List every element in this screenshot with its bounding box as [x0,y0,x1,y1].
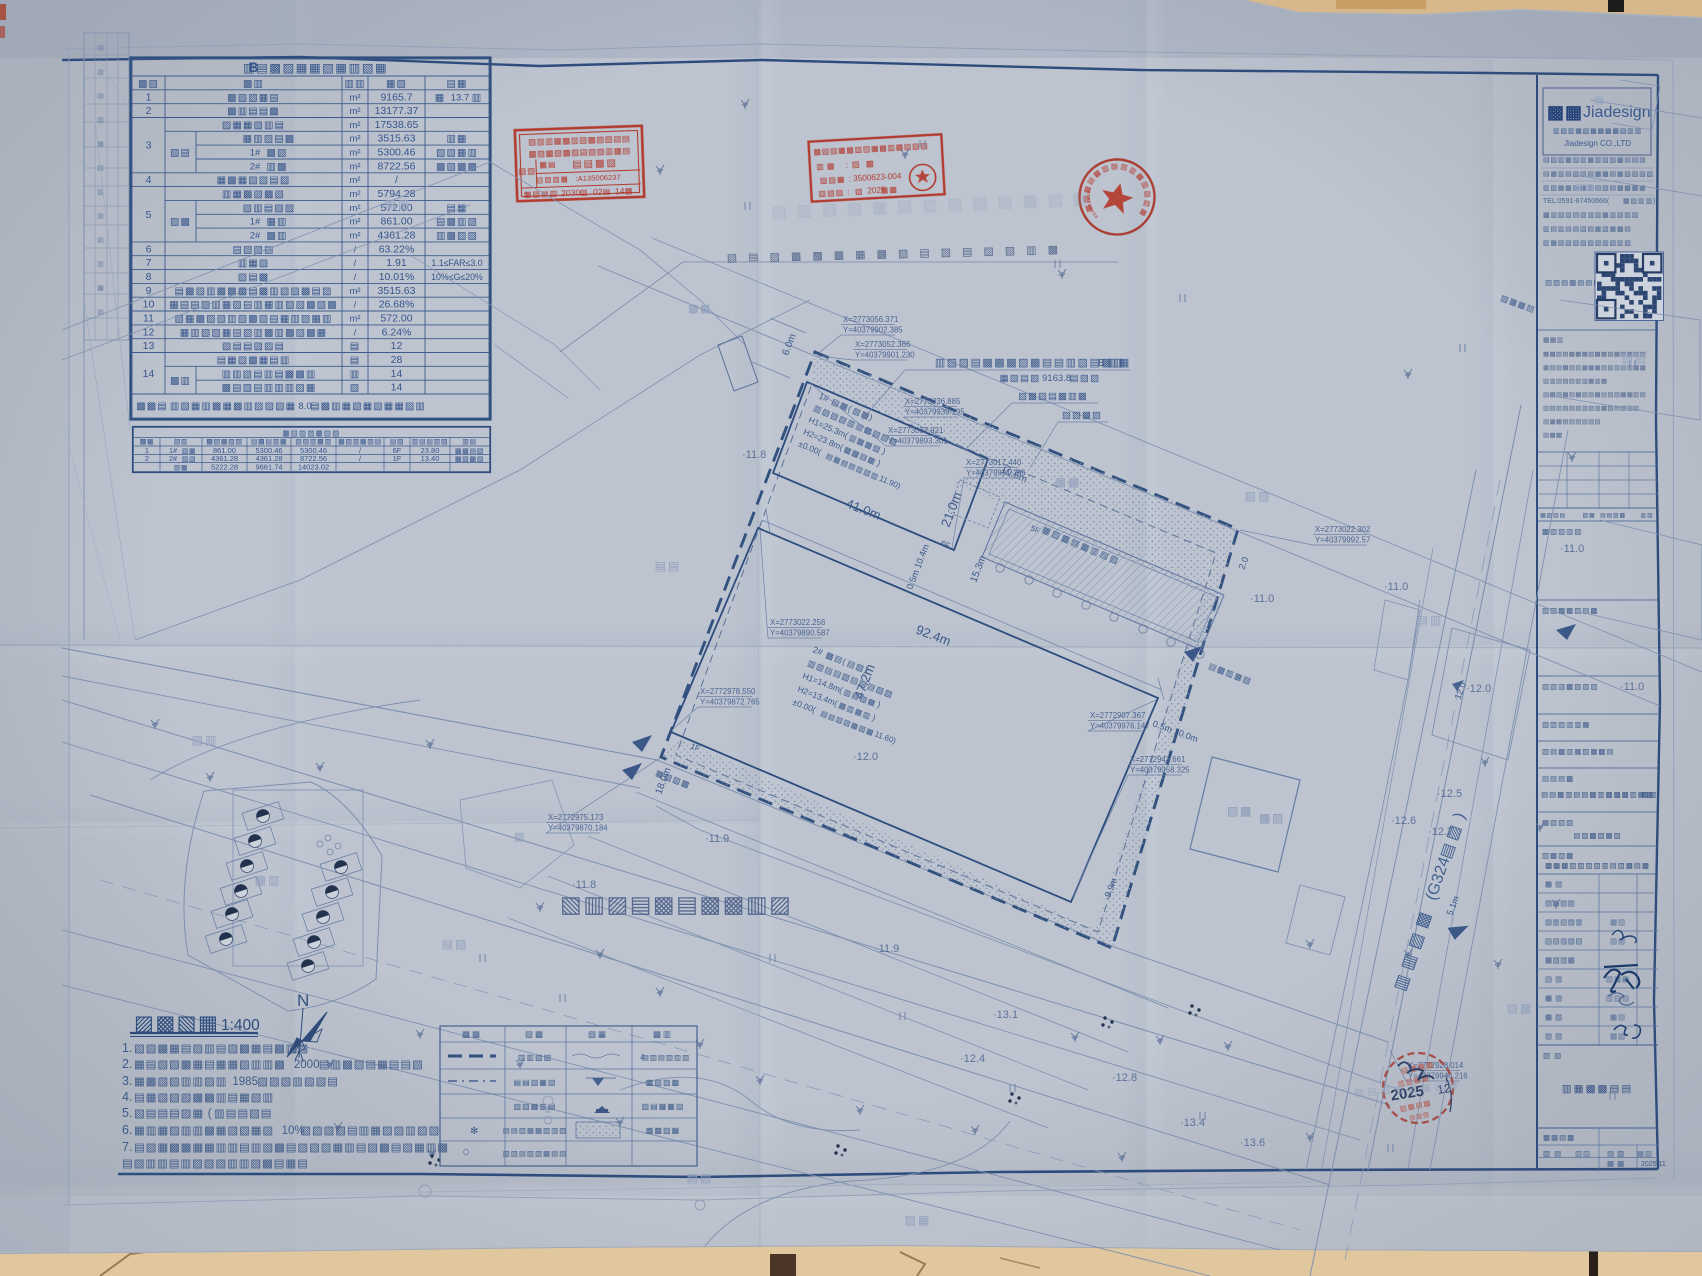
svg-text:▩▩▩▧▨▧▧▥▤▧▩▤▩: ▩▩▩▧▨▧▧▥▤▧▩▤▩ [1545,861,1650,870]
svg-text:▩▩▨▦: ▩▩▨▦ [646,1126,680,1135]
svg-text:/: / [354,272,357,283]
svg-text:2000: 2000 [294,1059,320,1071]
svg-text:m²: m² [349,134,360,145]
svg-text:6: 6 [146,243,152,255]
svg-text:▦▤▤▨▥▦▨▤▥▦▥▨▨▩▧▩: ▦▤▤▨▥▦▨▤▥▦▥▨▨▩▧▩ [169,300,338,311]
svg-text:▥▥: ▥▥ [1641,513,1654,519]
svg-text:▥▩: ▥▩ [816,161,838,171]
svg-text:·12.8: ·12.8 [1112,1072,1137,1084]
svg-text:▧▩: ▧▩ [525,1029,545,1039]
svg-text:8: 8 [146,271,152,283]
svg-text:1F: 1F [393,454,402,463]
svg-text:▧: ▧ [855,187,864,196]
svg-text:▤: ▤ [97,45,105,52]
svg-text:·12.0: ·12.0 [1466,683,1491,695]
svg-text:▩▥▤▤▩: ▩▥▤▤▩ [227,106,280,117]
svg-text:11: 11 [143,312,154,324]
svg-text:▦▥: ▦▥ [266,217,287,228]
svg-text:▧▥: ▧▥ [174,439,189,446]
svg-text:▧: ▧ [1143,190,1153,199]
svg-text:▤▥▤▨▨▧: ▤▥▤▨▨▧ [642,1053,690,1062]
svg-text:▩▥: ▩▥ [266,231,287,242]
svg-text:▤▨: ▤▨ [442,937,469,951]
svg-text:m²: m² [349,148,360,159]
svg-text:▦▥: ▦▥ [1637,1149,1653,1158]
svg-text:13: 13 [143,340,155,352]
svg-text:·13.6: ·13.6 [1240,1137,1265,1149]
svg-text:13.7: 13.7 [451,92,470,103]
svg-text:/: / [395,174,398,186]
svg-text:▤▦: ▤▦ [446,78,467,89]
svg-text:▦▩▧▨▥▥▨▥: ▦▩▧▨▥▥▨▥ [134,1076,227,1088]
svg-text:▧▤▨: ▧▤▨ [818,188,844,198]
svg-text:▤▧▦▩▩▦▦▥▥▤▥▧▩▤▨▧▨▦▥▤▨▩▤▧▦▥▩: ▤▧▦▩▩▦▦▥▥▤▥▧▩▤▨▧▨▦▥▤▨▩▤▧▦▥▩ [134,1142,449,1154]
svg-text:▩▧▧▦▤: ▩▧▧▦▤ [227,92,280,103]
svg-text:1985: 1985 [232,1076,258,1088]
svg-text:▧▥▤▨▥: ▧▥▤▨▥ [1545,918,1583,927]
svg-text:▧▧: ▧▧ [518,166,536,177]
svg-text:▩▥: ▩▥ [653,1029,673,1039]
svg-text:m²: m² [349,217,360,228]
svg-text:9163.8: 9163.8 [1042,373,1071,384]
svg-text:▧▤▤▨▨▤: ▧▤▤▨▨▤ [222,341,285,352]
svg-text:10%≤G≤20%: 10%≤G≤20% [431,272,483,282]
svg-text:▨▥: ▨▥ [192,733,219,747]
svg-text:▩▦: ▩▦ [140,439,155,446]
svg-text:▧: ▧ [97,69,105,76]
svg-text:▨▦: ▨▦ [905,1213,932,1227]
svg-text:▥▥▨▧: ▥▥▨▧ [518,1053,552,1062]
svg-text:5: 5 [146,209,152,221]
svg-text:▧: ▧ [350,383,361,394]
svg-text:▧▥: ▧▥ [1641,790,1657,799]
svg-text:▤: ▤ [1595,95,1606,106]
svg-text:4: 4 [146,174,152,186]
svg-text:▧▥▨▤▩▤▩▩▥▨: ▧▥▨▤▩▤▩▩▥▨ [560,891,792,917]
svg-text:2.: 2. [122,1057,132,1071]
svg-text:▩▧: ▩▧ [1545,880,1565,889]
svg-text:/: / [354,327,357,338]
svg-text:▤▦▧▨▧▩▩▥▤▦▧▥: ▤▦▧▨▧▩▩▥▤▦▧▥ [134,1092,274,1104]
svg-text:·11.0: ·11.0 [1250,593,1274,605]
svg-text:1#: 1# [250,217,261,228]
svg-text:m²: m² [349,120,360,131]
svg-text:m²: m² [349,161,360,172]
svg-text:▤▤▧▦▧: ▤▤▧▦▧ [514,1078,557,1087]
svg-text:▦▥▧▧▦▤▧▥▩▥▩▨▩▦: ▦▥▧▧▦▤▧▥▩▥▩▨▩▦ [180,327,327,338]
svg-text:▥▩▧▨: ▥▩▧▨ [436,231,478,242]
svg-text:▩▥: ▩▥ [170,376,191,387]
svg-text:▤: ▤ [350,341,361,352]
svg-text:▦▨▥▦▥▤: ▦▨▥▦▥▤ [338,439,382,446]
svg-text:Jiadesign: Jiadesign [1583,104,1651,121]
svg-text:▤▧: ▤▧ [1575,182,1594,192]
svg-text:▦▦: ▦▦ [1607,1159,1627,1168]
svg-text:·12.7: ·12.7 [1428,826,1453,838]
svg-text:5300.46: 5300.46 [378,147,416,159]
svg-text:▦▩: ▦▩ [1055,475,1082,489]
svg-text:·13.1: ·13.1 [993,1009,1018,1021]
svg-text:63.22%: 63.22% [379,243,415,255]
svg-text:12: 12 [391,340,403,352]
svg-text:X=2773036.885: X=2773036.885 [905,397,961,406]
svg-text:▧▤▦▦▨: ▧▤▦▦▨ [642,1102,685,1111]
svg-text:✻: ✻ [470,1126,478,1137]
svg-text:▩▧: ▩▧ [266,148,287,159]
svg-text:▨▥: ▨▥ [1575,1149,1591,1158]
svg-text:▨▧▩▦▤▨▥▤▨▩▦▤▩▥▧: ▨▧▩▦▤▨▥▤▨▩▦▤▩▥▧ [134,1043,309,1055]
svg-text:(: ( [208,1108,212,1120]
svg-text:3515.63: 3515.63 [378,285,416,297]
svg-text:▨▧▩▨: ▨▧▩▨ [1062,410,1102,421]
svg-text:▦▨▥▤: ▦▨▥▤ [1540,513,1566,519]
svg-text:2#: 2# [169,454,177,463]
svg-text:X=2773022.256: X=2773022.256 [770,618,825,627]
svg-text:/: / [354,244,357,255]
svg-text:▤▤▩▧: ▤▤▩▧ [572,158,618,171]
svg-text:m²: m² [349,175,360,186]
svg-text:▩▥: ▩▥ [1610,1013,1626,1022]
svg-text:14023.02: 14023.02 [298,462,329,471]
svg-text:12: 12 [143,326,155,338]
svg-text:▦▦▥: ▦▦▥ [1543,337,1563,344]
svg-text:▤▨: ▤▨ [390,439,405,446]
svg-text:10.01%: 10.01% [379,271,415,283]
svg-text:▨▨▧▥▧▧▤: ▨▨▧▥▧▧▤ [257,1076,339,1088]
svg-text:1:400: 1:400 [221,1017,260,1034]
svg-text:▦▤: ▦▤ [1610,918,1626,927]
svg-text:▨▩▧▦: ▨▩▧▦ [134,1012,219,1035]
svg-text:▧▨▨▨▤▥▦▨▨▥▨▧: ▧▨▨▨▤▥▦▨▨▥▨▧ [300,1125,440,1137]
svg-text:▦▧▤▩▨▥▦▦▦▨▥▥▤▥▩▦: ▦▧▤▩▨▥▦▦▦▨▥▥▤▥▩▦ [1543,365,1646,372]
svg-text:▧▤▤▤▨▦: ▧▤▤▤▨▦ [134,1108,204,1120]
svg-text:▥▥: ▥▥ [344,78,365,89]
svg-text:1.91: 1.91 [386,257,407,269]
svg-text:▧▧▥▩▨▧▧: ▧▧▥▩▨▧▧ [1542,682,1598,691]
svg-text:▧▩: ▧▩ [1507,1001,1534,1015]
svg-text:N: N [297,991,309,1010]
svg-text:▧▦▩▨▧▥▧▩▨▤▦▥▧▦▥: ▧▦▩▨▧▥▧▩▨▤▦▥▧▦▥ [175,313,333,324]
svg-text:4.: 4. [122,1090,132,1104]
svg-text:14: 14 [143,368,155,380]
svg-text:▧▨: ▧▨ [1545,1032,1565,1041]
svg-text:▥▦: ▥▦ [1107,357,1131,369]
svg-text:▦▤▧▧▩▦▤▦▦▧▥▥▩: ▦▤▧▧▩▦▤▦▦▧▥▥▩ [134,1059,286,1071]
svg-text:▨▦▦▨▥▤: ▨▦▦▨▥▤ [222,120,285,131]
svg-text:·11.9: ·11.9 [705,833,729,845]
svg-text:▩: ▩ [97,285,105,292]
svg-text:Y=40379958.325: Y=40379958.325 [1130,766,1190,775]
svg-text:▦▩▦▧▧▤▨: ▦▩▦▧▧▤▨ [217,175,291,186]
svg-text:▦▤: ▦▤ [539,160,557,170]
svg-text:4361.28: 4361.28 [378,230,416,242]
svg-text:·12.6: ·12.6 [1391,815,1416,827]
svg-text:9165.7: 9165.7 [380,91,412,103]
svg-text:·12.5: ·12.5 [1437,788,1462,800]
svg-text:/: / [354,258,357,269]
svg-text:▥▥▧▤▥▤▩▩▥: ▥▥▧▤▥▤▩▩▥ [222,369,317,380]
svg-text:▩▧▦▨▧: ▩▧▦▨▧ [206,439,243,446]
svg-text:▩▧: ▩▧ [138,78,159,89]
svg-text:·11.0: ·11.0 [1384,581,1408,593]
svg-text:1: 1 [146,91,152,103]
svg-text:▦▤▨▨▦▤▧: ▦▤▨▨▦▤▧ [282,429,340,438]
svg-text:X=2773017.440: X=2773017.440 [966,458,1022,467]
svg-text:▩▧▤▥: ▩▧▤▥ [524,189,559,199]
svg-text:m²: m² [349,92,360,103]
svg-text:▧▤▩▥▦▨▦▩▤: ▧▤▩▥▦▨▦▩▤ [1542,747,1615,756]
svg-text:Y=40379939.195: Y=40379939.195 [905,408,965,417]
svg-text:▨▥▨▥: ▨▥▨▥ [1545,899,1575,908]
svg-text:▤▧▧: ▤▧▧ [1070,373,1101,384]
svg-text:▧▥: ▧▥ [1622,351,1649,365]
svg-text:▧▦: ▧▦ [182,448,197,455]
svg-text:▤▧▩▧▦▨: ▤▧▩▧▦▨ [1573,831,1621,840]
svg-text:2#: 2# [250,161,261,172]
svg-text:▨▩: ▨▩ [170,217,191,228]
svg-text:▥: ▥ [97,261,105,268]
svg-text:▤▧▧▤: ▤▧▧▤ [232,244,274,255]
svg-text:B: B [1098,358,1105,369]
svg-text:▨▦: ▨▦ [1583,513,1596,519]
svg-text:▥▦: ▥▦ [446,134,467,145]
svg-text:▧▧▦▥▤: ▧▧▦▥▤ [514,1102,557,1111]
svg-text:▤: ▤ [97,237,105,244]
svg-text:▤▥: ▤▥ [1545,975,1565,984]
svg-text:10: 10 [143,299,155,311]
svg-text:▤▤: ▤▤ [655,559,682,573]
svg-text:X=2772978.550: X=2772978.550 [700,687,756,696]
svg-text:▤: ▤ [603,187,612,196]
svg-text:Y=40379893.301: Y=40379893.301 [888,437,948,446]
svg-text:▥: ▥ [350,369,361,380]
svg-text:▤▦: ▤▦ [446,203,467,214]
svg-text:▤: ▤ [97,213,105,220]
svg-text:▦: ▦ [625,186,634,195]
svg-text:▧▧: ▧▧ [1543,1051,1565,1060]
svg-text:·13.4: ·13.4 [1180,1117,1205,1129]
svg-text:▥▨▨▤▩▩▩▨▩▤▤▥▧▤▩▥: ▥▨▨▤▩▩▩▨▩▤▤▥▧▤▩▥ [935,357,1125,369]
svg-text:Y=40379992.57: Y=40379992.57 [1315,536,1370,545]
svg-text:▧: ▧ [1111,161,1120,171]
svg-text:▥▥▨▨▨▥▥▦▥▦: ▥▥▨▨▨▥▥▦▥▦ [1543,378,1607,385]
svg-text:▩▩: ▩▩ [462,1029,482,1039]
svg-text:▨▧: ▨▧ [182,456,197,463]
svg-text:▨▩▩: ▨▩▩ [1543,432,1562,439]
svg-text:▩▧▥▦: ▩▧▥▦ [1545,956,1575,965]
svg-text:▤: ▤ [97,93,105,100]
svg-text:▨▤: ▨▤ [1543,1149,1565,1158]
svg-text:▥: ▥ [472,92,483,103]
svg-text:▥▦: ▥▦ [174,464,189,471]
svg-text:▤▤▩▥▤▤▩▥▩▩▩▥▦▩: ▤▤▩▥▤▤▩▥▩▩▩▥▦▩ [1541,790,1654,799]
svg-text:▥▤▤▥▨: ▥▤▤▥▨ [412,439,449,446]
svg-text:·11.0: ·11.0 [1620,681,1644,693]
svg-text:▩▥: ▩▥ [243,78,264,89]
svg-text:m²: m² [349,231,360,242]
svg-text:·11.0: ·11.0 [1560,543,1584,555]
svg-text:▦▧: ▦▧ [386,78,407,89]
svg-text:▧▤▩: ▧▤▩ [238,272,270,283]
svg-text:8722.56: 8722.56 [378,160,416,172]
svg-text:▥▦▩▧▩▧: ▥▦▩▧▩▧ [222,189,285,200]
svg-text:▩▩▤▧: ▩▩▤▧ [455,448,484,455]
svg-text:6.24%: 6.24% [382,326,412,338]
svg-text:·11.9: ·11.9 [875,943,899,955]
svg-text:m²: m² [349,106,360,117]
svg-text:▧▧▦▥: ▧▧▦▥ [436,148,478,159]
svg-text:▩▦: ▩▦ [1547,102,1583,122]
svg-text:▦: ▦ [435,92,446,103]
svg-text:1.: 1. [122,1041,132,1055]
svg-text:TEL:0591-87450666(: TEL:0591-87450666( [1543,198,1610,205]
svg-text:1.1≤FAR≤3.0: 1.1≤FAR≤3.0 [431,258,482,268]
svg-text:2025.11: 2025.11 [1641,1161,1666,1168]
svg-text:2: 2 [145,454,149,463]
svg-text:6.: 6. [122,1123,132,1137]
svg-text:X=2773056.371: X=2773056.371 [843,315,898,324]
svg-text:▤▥: ▤▥ [385,197,412,211]
svg-text:m²: m² [349,286,360,297]
svg-text:▩▦▤▩: ▩▦▤▩ [1543,1133,1575,1142]
svg-text:Y=40379870.184: Y=40379870.184 [548,824,608,833]
svg-text:9661.74: 9661.74 [255,462,282,471]
svg-text:2030: 2030 [561,188,581,199]
svg-text:Y=40379901.230: Y=40379901.230 [855,351,915,360]
svg-text:▥▦▨: ▥▦▨ [238,258,270,269]
svg-text:▤: ▤ [350,355,361,366]
svg-text:02: 02 [593,187,603,197]
svg-text:▤▩▥▦▧▦▧▦▦▨▥: ▤▩▥▦▧▦▧▦▦▨▥ [310,401,426,412]
svg-text:▦▧▤▨: ▦▧▤▨ [1000,373,1041,384]
svg-text:▤▨: ▤▨ [687,1171,714,1185]
svg-text:572.00: 572.00 [380,312,412,324]
svg-text:▤▧▥▥▤▥▨▧▧▥▥▨▩▤▦▤: ▤▧▥▥▤▥▨▧▧▥▥▨▩▤▦▤ [122,1158,309,1170]
svg-text:14: 14 [391,368,403,380]
svg-text:17538.65: 17538.65 [375,119,419,131]
svg-text:▦▧▨▨: ▦▧▨▨ [1542,818,1574,827]
svg-text:861.00: 861.00 [380,216,412,228]
svg-text:m²: m² [349,203,360,214]
svg-text:▨▩▧▤▩▥▩: ▨▩▧▤▩▥▩ [1018,391,1088,402]
svg-text:·12.0: ·12.0 [853,751,878,763]
svg-text:▦▨▥▥: ▦▨▥▥ [1623,198,1653,205]
svg-text:▧▤: ▧▤ [170,148,191,159]
svg-text:▧▨▥▩▥: ▧▨▥▩▥ [295,439,332,446]
svg-text:3: 3 [146,140,152,152]
svg-text:▨▨: ▨▨ [1245,489,1272,503]
svg-text:·12.4: ·12.4 [960,1053,985,1065]
svg-text:Y=40379890.587: Y=40379890.587 [770,629,830,638]
svg-text:▤▨▥▦▨▥▦▥▨▨▩▤▤▤: ▤▨▥▦▨▥▦▥▨▨▩▤▤▤ [1543,155,1646,164]
svg-text:▤▦▨▩▦▤▥: ▤▦▨▩▦▤▥ [217,355,291,366]
svg-text:▥▤▤▧▤: ▥▤▤▧▤ [214,1108,272,1120]
svg-text::A135006237: :A135006237 [575,173,620,184]
svg-text:▩▨▩▨: ▩▨▩▨ [455,456,484,463]
svg-text:m²: m² [349,313,360,324]
svg-text:14: 14 [391,382,403,394]
svg-text:▤▥▩▨▤▦▤▤▧: ▤▥▩▨▤▦▤▤▧ [319,1059,424,1071]
svg-text:▨▩: ▨▩ [851,158,880,170]
svg-text:1#: 1# [250,148,261,159]
svg-text:▩▧: ▩▧ [1545,1013,1565,1022]
svg-text:▦▥▦▧▥▥▩▦▧▧▦▨: ▦▥▦▧▥▥▩▦▧▧▦▨ [134,1125,274,1137]
svg-text:▩▩▤: ▩▩▤ [136,401,168,412]
svg-text:▥▤▥▤▤▧▤▦▧▦▩▤: ▥▤▥▤▤▧▤▦▧▦▩▤ [1543,224,1632,233]
svg-text:▨: ▨ [580,188,589,197]
svg-text:5222.28: 5222.28 [211,462,238,471]
svg-text:▨▨▩▩▨▤▩: ▨▨▩▩▨▤▩ [1542,606,1598,615]
svg-text:m²: m² [349,189,360,200]
svg-text:▩▨▨▩: ▩▨▨▩ [646,1078,680,1087]
svg-text:▩▧▩▩: ▩▧▩▩ [436,161,478,172]
svg-text:2: 2 [146,105,152,117]
svg-text:▦▩: ▦▩ [880,185,898,195]
svg-text:Y=40379902.385: Y=40379902.385 [843,326,903,335]
svg-text:·11.8: ·11.8 [742,449,766,461]
svg-text:26.68%: 26.68% [379,299,415,311]
svg-text:▩▤▧▤▥▥▥▨▦: ▩▤▧▤▥▥▥▨▦ [222,383,317,394]
svg-text:▤▦▥▤▧▤▤▩▩▤▦▨▨▧▧: ▤▦▥▤▧▤▤▩▩▤▦▨▨▧▧ [1543,169,1654,178]
svg-text:▧▩: ▧▩ [1227,804,1253,818]
svg-text:▨▨▦: ▨▨▦ [820,175,846,185]
svg-text:▥▦▧▧▧▨▨▧▥▧▥▨: ▥▦▧▧▧▨▨▧▥▧▥▨ [1543,238,1632,247]
svg-text:Y=40379931.266: Y=40379931.266 [966,469,1026,478]
svg-text:X=2773032.921: X=2773032.921 [888,426,943,435]
svg-text:Jiadesign CO.,LTD: Jiadesign CO.,LTD [1564,139,1631,148]
svg-text:▥▧▦▥▩▦▩▥▨▨▧▦: ▥▧▦▥▩▦▩▥▨▨▧▦ [170,401,296,412]
svg-text:▧▥▤▧▨: ▧▥▤▧▨ [243,203,296,214]
svg-text:X=2773052.366: X=2773052.366 [855,340,910,349]
svg-text:3.: 3. [122,1074,132,1088]
svg-text:▦▥: ▦▥ [255,873,282,887]
svg-text:/: / [354,300,357,311]
svg-text:X=2772975.173: X=2772975.173 [548,813,603,822]
svg-text:5.: 5. [122,1106,132,1120]
svg-text:▤▥: ▤▥ [1417,613,1444,627]
svg-text:▥▦▩▩▤▤: ▥▦▩▩▤▤ [1562,1083,1634,1095]
svg-text:7: 7 [146,257,152,269]
svg-text:▤▤▥▨▤: ▤▤▥▨▤ [1545,937,1583,946]
svg-text:28: 28 [391,354,403,366]
svg-text:▥▤: ▥▤ [462,439,477,446]
svg-text:▩▥: ▩▥ [1545,994,1565,1003]
svg-text:▧▦: ▧▦ [588,1029,608,1039]
svg-text:▥▩: ▥▩ [266,161,287,172]
svg-text:▤▨: ▤▨ [1607,1149,1627,1158]
svg-text:X=2773022.302: X=2773022.302 [1315,525,1370,534]
svg-text:▧▨▧▥▥▦: ▧▨▧▥▥▦ [1542,720,1590,729]
svg-text:14: 14 [615,186,625,196]
svg-text:▨: ▨ [97,117,105,124]
svg-text:▨▦▩▧▨▨▤▨▤: ▨▦▩▧▨▨▤▨▤ [1543,419,1601,426]
svg-text:▤▤▤▩: ▤▤▤▩ [1542,774,1574,783]
svg-text:·11.8: ·11.8 [572,879,596,891]
svg-text:▦▥▨▤▩: ▦▥▨▤▩ [243,134,296,145]
svg-text:▩▥▧▨▤▧▥▥▦▥▧▨▨: ▩▥▧▨▤▧▥▥▦▥▧▨▨ [1543,210,1639,219]
svg-text:3515.63: 3515.63 [378,133,416,145]
svg-text:Y=40379872.765: Y=40379872.765 [700,698,760,707]
svg-text:▨▩▧▩: ▨▩▧▩ [1542,851,1574,860]
svg-text:13.40: 13.40 [421,454,440,463]
svg-text:▧: ▧ [514,831,526,843]
svg-text:▧▨▤▨▧▦▤▤: ▧▨▤▨▧▦▤▤ [503,1149,568,1158]
svg-text:X=2772987.367: X=2772987.367 [1090,711,1145,720]
svg-text:▤▩▤▥▦: ▤▩▤▥▦ [251,439,288,446]
svg-text:▥▤▩▨▦▦▧▦▥▧▦: ▥▤▩▨▦▦▧▦▥▧▦ [243,61,388,75]
svg-text:X=2772943.661: X=2772943.661 [1130,755,1185,764]
svg-text:▤▤▨▩: ▤▤▨▩ [1600,513,1626,519]
